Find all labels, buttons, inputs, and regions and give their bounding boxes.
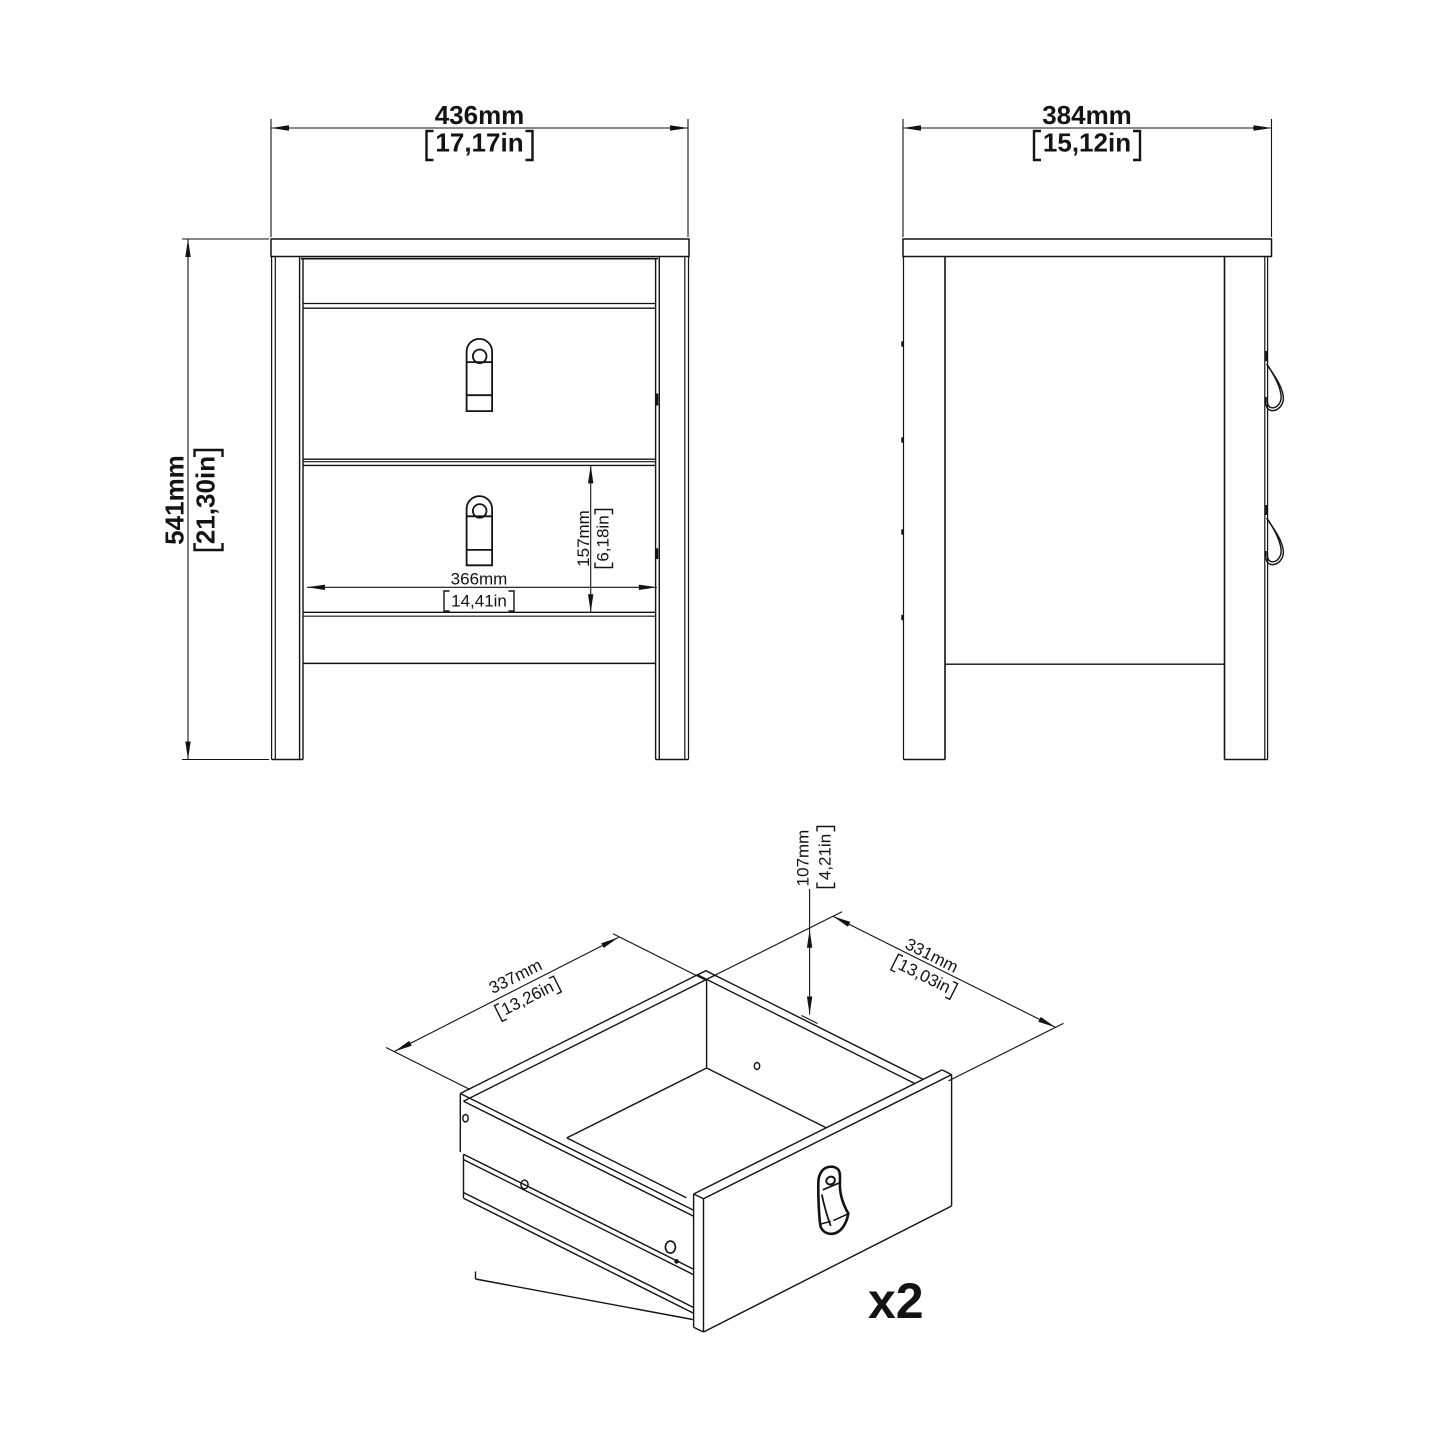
svg-text:x2: x2	[868, 1273, 924, 1329]
svg-text:366mm: 366mm	[451, 570, 508, 589]
svg-text:541mm: 541mm	[160, 455, 190, 545]
svg-text:436mm: 436mm	[435, 100, 525, 130]
svg-text:6,18in: 6,18in	[594, 515, 613, 561]
svg-text:17,17in: 17,17in	[435, 128, 523, 158]
svg-text:384mm: 384mm	[1042, 100, 1132, 130]
svg-text:14,41in: 14,41in	[451, 592, 507, 611]
svg-text:4,21in: 4,21in	[816, 834, 835, 880]
svg-text:21,30in: 21,30in	[191, 456, 221, 544]
svg-text:107mm: 107mm	[794, 830, 813, 887]
svg-text:157mm: 157mm	[574, 510, 593, 567]
svg-text:15,12in: 15,12in	[1043, 128, 1131, 158]
